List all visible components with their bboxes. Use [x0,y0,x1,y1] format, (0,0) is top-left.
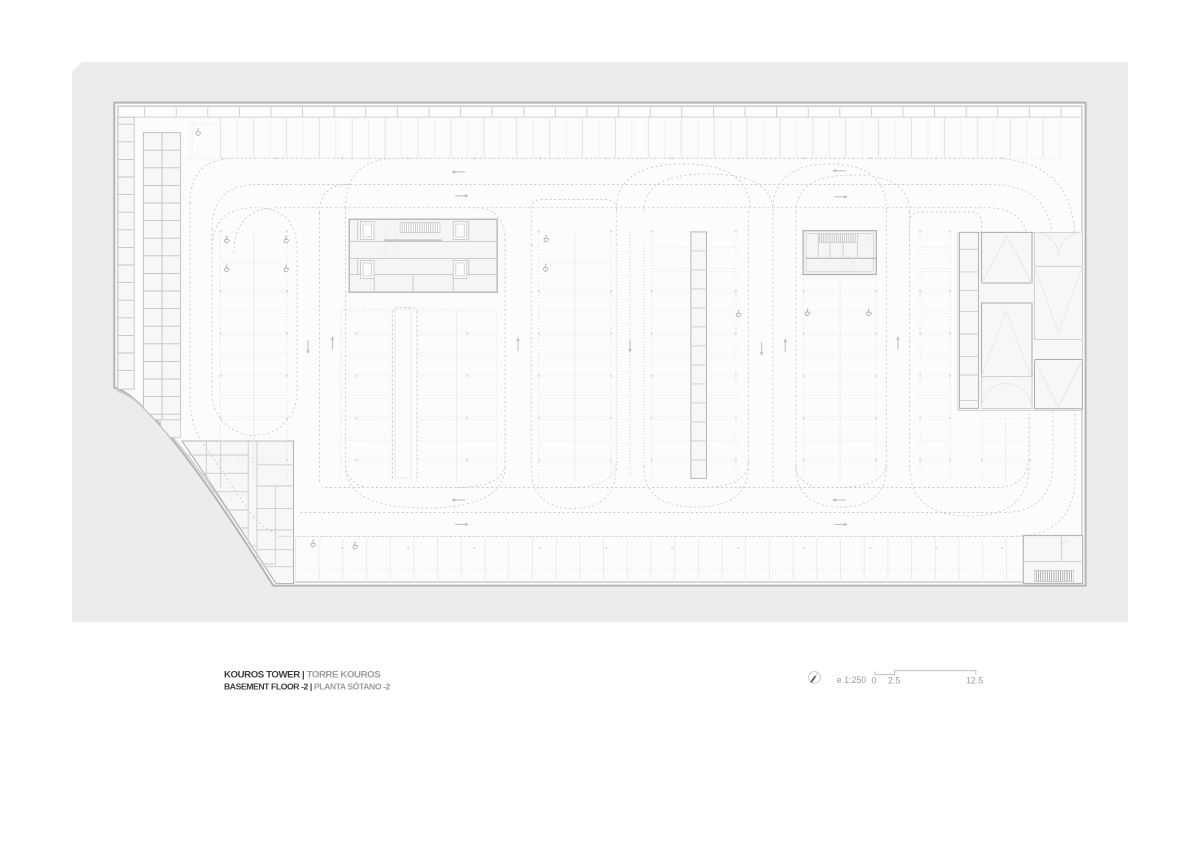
svg-text:2.5: 2.5 [888,676,900,686]
svg-text:12.5: 12.5 [966,676,983,686]
svg-text:KOUROS TOWER | TORRE KOUROS: KOUROS TOWER | TORRE KOUROS [224,670,381,681]
svg-text:0: 0 [872,676,877,686]
svg-text:e 1:250: e 1:250 [837,675,866,685]
svg-text:BASEMENT FLOOR -2 | PLANTA SÓ: BASEMENT FLOOR -2 | PLANTA SÓTANO -2 [224,680,391,691]
